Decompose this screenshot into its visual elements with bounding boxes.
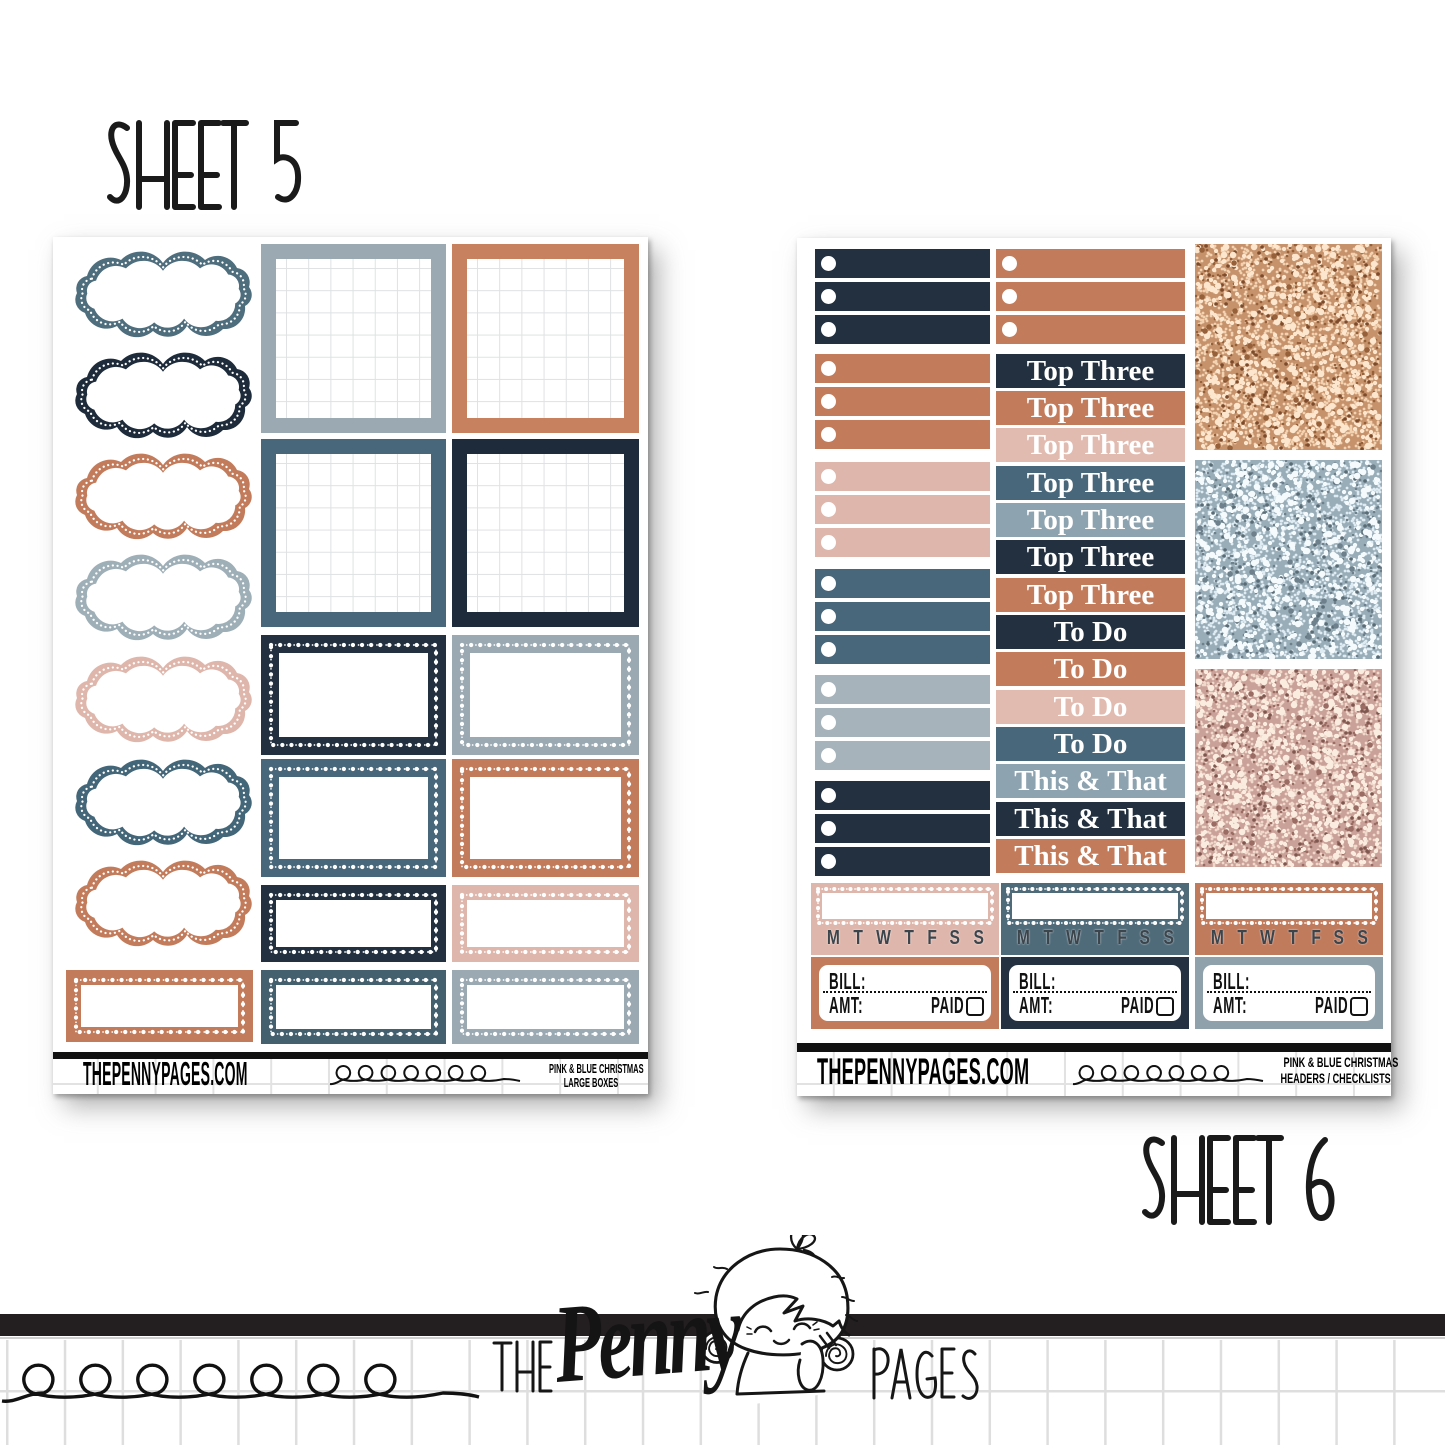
svg-text:Penny: Penny bbox=[548, 1268, 747, 1406]
